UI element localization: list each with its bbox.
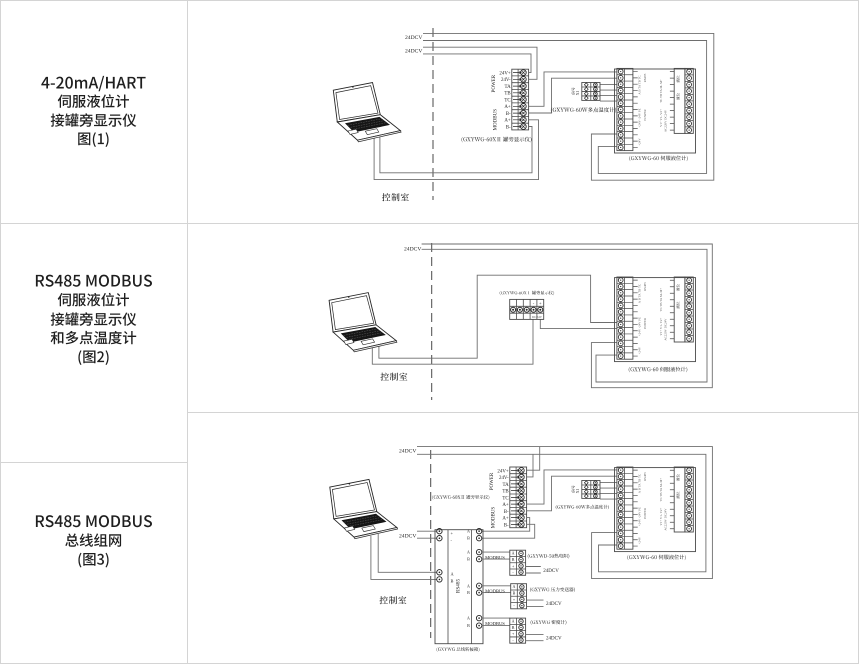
svg-text:B: B [467,557,470,562]
svg-text:A: A [467,583,470,588]
svg-text:B: B [467,623,470,628]
svg-text:24DCV: 24DCV [546,637,562,642]
svg-text:B: B [467,536,470,541]
svg-text:A: A [467,529,470,534]
svg-text:24DCV: 24DCV [399,534,416,540]
svg-text:DC24V: DC24V [532,315,543,319]
svg-text:RS485: RS485 [456,579,462,594]
svg-text:A: A [467,616,470,621]
svg-text:A: A [467,550,470,555]
svg-text:MODBUS: MODBUS [485,621,505,626]
svg-text:MODBUS: MODBUS [485,589,505,594]
svg-text:24DCV: 24DCV [546,602,562,607]
svg-text:MODBUS: MODBUS [485,555,505,560]
svg-text:B: B [467,590,470,595]
svg-text:24DCV: 24DCV [399,449,416,455]
svg-text:24DCV: 24DCV [405,35,422,41]
svg-text:24DCV: 24DCV [404,247,421,253]
svg-text:+: + [539,301,542,306]
svg-text:B: B [451,579,454,584]
svg-text:24DCV: 24DCV [405,49,422,55]
svg-text:24DCV: 24DCV [543,569,559,574]
